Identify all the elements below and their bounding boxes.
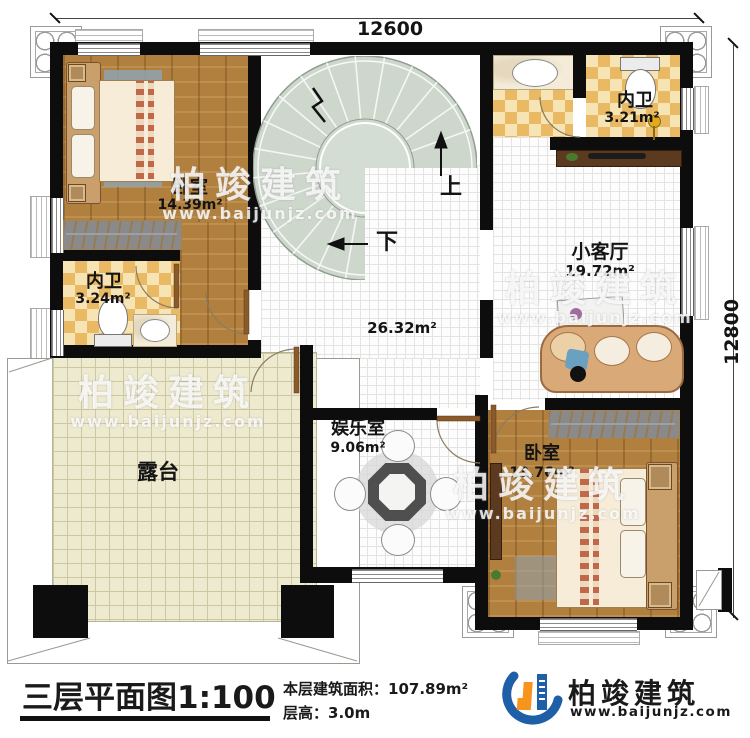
plant-icon — [566, 153, 578, 161]
wall-hall-living2 — [480, 300, 493, 358]
terrace-pillar — [281, 585, 334, 638]
floor-height-line: 层高：3.0m — [283, 702, 370, 723]
window-sill — [75, 29, 143, 43]
window-sill — [198, 29, 314, 43]
plant-icon — [491, 570, 501, 580]
room-area-bedroom-tl: 14.39m² — [148, 198, 232, 213]
wall-top — [50, 42, 693, 55]
sink-icon — [140, 319, 170, 342]
floor-height-label: 层高： — [283, 704, 328, 722]
bed-post — [68, 64, 86, 82]
stair-down-label: 下 — [372, 231, 402, 254]
terrace-floor — [52, 352, 317, 622]
stair-up-label: 上 — [436, 176, 466, 199]
window-sill — [30, 308, 52, 362]
sofa-cushion — [594, 336, 630, 366]
sink-icon — [512, 59, 558, 87]
wardrobe-tl — [63, 220, 182, 250]
dimension-width-label: 12600 — [330, 20, 450, 40]
room-area-bath-tr: 3.21m² — [592, 111, 672, 126]
brand-logo-icon — [498, 664, 564, 728]
window-sill — [30, 196, 52, 258]
corner-bay — [696, 570, 722, 610]
floor-area-label: 本层建筑面积： — [283, 680, 388, 698]
chair-icon — [381, 524, 415, 556]
wall-bathtr-internal — [573, 55, 586, 98]
room-area-living: 19.72m² — [558, 264, 642, 280]
room-name-bedroom-tl: 卧室 — [150, 179, 230, 198]
window — [681, 228, 694, 316]
floor-area-line: 本层建筑面积：107.89m² — [283, 678, 468, 699]
bath-tr-floor — [493, 88, 573, 137]
room-name-living: 小客厅 — [555, 243, 645, 263]
bed-stripe — [136, 81, 144, 179]
window — [200, 43, 310, 56]
coffee-table-flowers — [570, 308, 582, 320]
wall-terrace-north2 — [300, 345, 313, 358]
wall-bathtr-south — [550, 137, 680, 150]
room-area-hall: 26.32m² — [360, 321, 444, 337]
bed-pillow — [71, 134, 95, 178]
bed-pillow — [620, 478, 646, 526]
terrace-pillar — [33, 585, 88, 638]
room-area-game: 9.06m² — [320, 441, 396, 456]
room-name-game: 娱乐室 — [318, 420, 398, 439]
floor-height-value: 3.0m — [328, 704, 370, 722]
room-name-bedroom-br: 卧室 — [502, 445, 582, 464]
window-sill — [694, 86, 709, 134]
wall-bedroombr-north — [545, 398, 680, 410]
brand-url: www.baijunjz.com — [570, 704, 732, 720]
window — [78, 43, 140, 56]
plan-title: 三层平面图1:100 — [22, 672, 276, 717]
window — [51, 310, 64, 356]
chair-icon — [430, 477, 462, 511]
bed-headboard — [66, 62, 101, 204]
bed-stripe — [593, 469, 599, 605]
room-area-bath-l: 3.24m² — [64, 292, 142, 307]
wall-game-west — [300, 358, 313, 583]
dimension-height-label: 12800 — [723, 290, 743, 374]
sofa-cushion — [636, 332, 672, 362]
toilet-tank-icon — [94, 334, 132, 347]
bed-pillow — [71, 86, 95, 130]
wall-bedroomtl-east — [248, 42, 261, 290]
corridor-floor — [180, 222, 248, 345]
chair-icon — [334, 477, 366, 511]
bed-pillow — [620, 530, 646, 578]
shower-stem — [653, 126, 655, 140]
room-name-bath-l: 内卫 — [66, 273, 142, 292]
window — [681, 88, 694, 130]
wardrobe-rod — [551, 423, 675, 425]
wall-right — [680, 42, 693, 630]
wardrobe-rod — [66, 233, 177, 235]
plan-title-text: 三层平面图 — [22, 680, 177, 716]
title-underline — [20, 716, 270, 721]
bed-stripe — [580, 469, 589, 605]
room-name-terrace: 露台 — [118, 461, 198, 483]
window — [540, 618, 637, 631]
person-head — [570, 366, 586, 382]
room-name-bath-tr: 内卫 — [595, 92, 675, 111]
wall-bedroombr-west — [475, 395, 488, 630]
stair-hall-floor — [261, 55, 480, 165]
window — [352, 569, 443, 583]
floor-area-value: 107.89m² — [388, 680, 468, 698]
bed-post — [68, 184, 86, 202]
bed-post — [648, 464, 672, 490]
tv-icon — [588, 153, 646, 159]
floor-plan: 12600 12800 — [0, 0, 750, 738]
room-area-bedroom-br: 13.76m² — [500, 466, 584, 481]
wall-hall-living — [480, 55, 493, 230]
window-sill — [538, 631, 640, 645]
bed-stripe — [148, 81, 154, 179]
plan-scale: 1:100 — [177, 680, 276, 716]
window-sill — [694, 226, 709, 320]
bed-post — [648, 582, 672, 608]
